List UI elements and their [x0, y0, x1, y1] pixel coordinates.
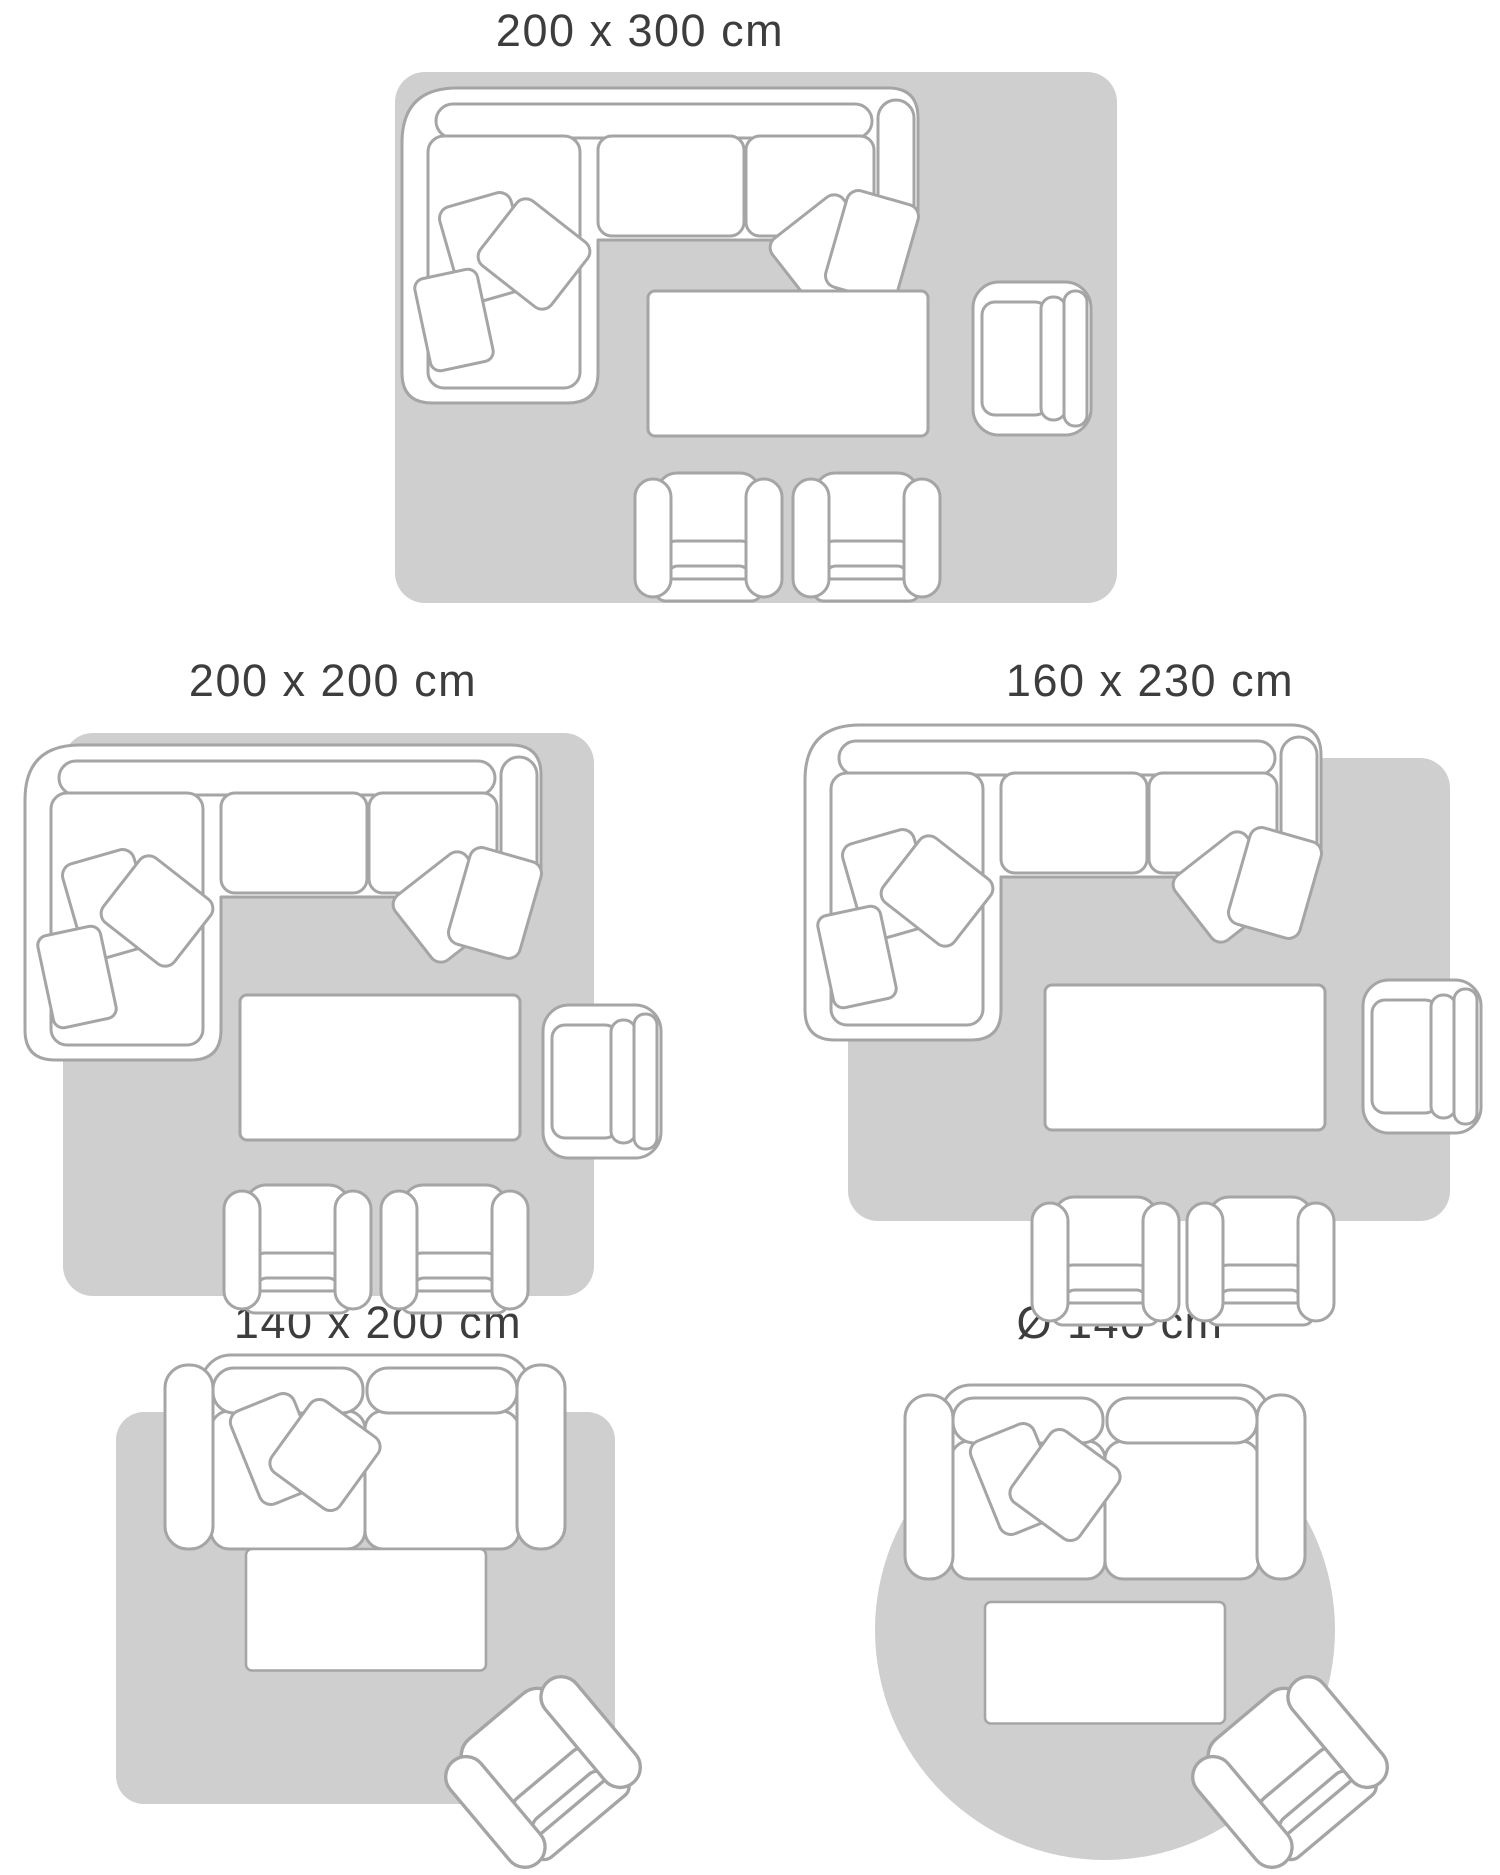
diagram-round-140	[875, 1385, 1398, 1875]
club-chair-icon	[635, 473, 782, 601]
coffee-table-icon	[648, 291, 928, 436]
coffee-table-icon	[246, 1549, 486, 1671]
armchair-icon	[1363, 980, 1481, 1133]
two-seat-sofa-icon	[905, 1385, 1305, 1579]
coffee-table-icon	[240, 995, 520, 1140]
diagram-140x200	[116, 1355, 651, 1875]
club-chair-icon	[224, 1185, 371, 1313]
rug-layout-illustration	[0, 0, 1500, 1875]
club-chair-icon	[1187, 1197, 1334, 1325]
two-seat-sofa-icon	[165, 1355, 565, 1549]
club-chair-icon	[793, 473, 940, 601]
diagram-200x300	[395, 72, 1117, 603]
rug-size-guide: 200 x 300 cm 200 x 200 cm 160 x 230 cm 1…	[0, 0, 1500, 1875]
coffee-table-icon	[985, 1602, 1225, 1724]
diagram-160x230	[805, 725, 1481, 1325]
club-chair-icon	[381, 1185, 528, 1313]
diagram-200x200	[25, 733, 661, 1313]
armchair-icon	[973, 282, 1091, 435]
coffee-table-icon	[1045, 985, 1325, 1130]
club-chair-icon	[1032, 1197, 1179, 1325]
armchair-icon	[543, 1005, 661, 1158]
